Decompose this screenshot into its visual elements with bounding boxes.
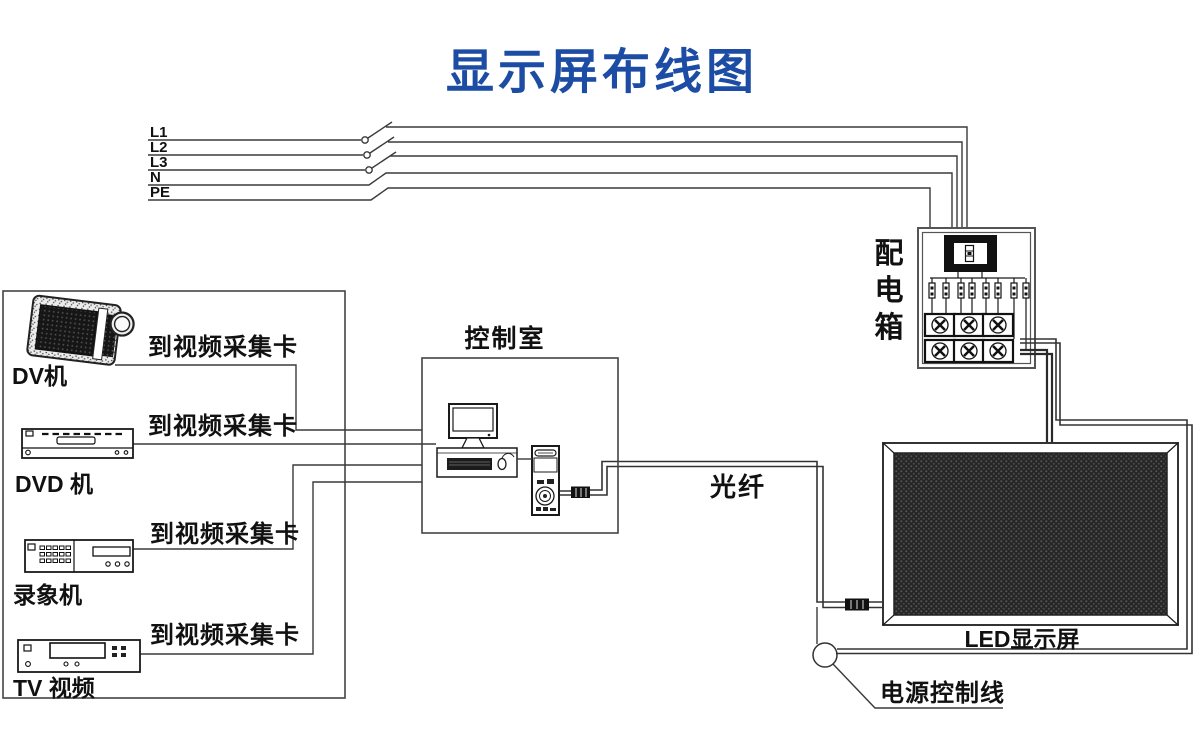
power-line-L1: L1 <box>148 122 967 234</box>
socket-icon <box>954 340 984 362</box>
power-feed-lines: L1 L2 L3 N PE <box>148 122 967 253</box>
socket-icon <box>983 340 1013 362</box>
power-line-L3: L3 <box>148 152 957 234</box>
control-room-label: 控制室 <box>464 324 545 353</box>
monitor-icon <box>449 404 497 448</box>
distribution-box-label-char2: 电 <box>874 274 903 307</box>
fiber-label: 光纤 <box>709 472 766 502</box>
wiring-diagram: 显示屏布线图 L1 L2 L3 N PE <box>0 0 1200 752</box>
power-control-label: 电源控制线 <box>880 679 1005 707</box>
page-title: 显示屏布线图 <box>446 46 758 99</box>
diagram-canvas: 显示屏布线图 L1 L2 L3 N PE <box>0 0 1200 752</box>
distribution-box-label-char1: 配 <box>874 238 903 270</box>
power-line-N: N <box>148 169 952 234</box>
dv-camera-label: DV机 <box>12 363 67 389</box>
control-room: 控制室 <box>422 324 618 533</box>
fiber-connector-icon <box>571 487 590 499</box>
socket-icon <box>983 314 1013 336</box>
dvd-player-label: DVD 机 <box>15 471 93 497</box>
fiber-cable: 光纤 <box>559 462 883 611</box>
control-room-box <box>422 358 618 533</box>
fiber-connector-icon <box>845 599 869 611</box>
power-line-PE: PE <box>148 184 934 253</box>
led-panel <box>894 453 1167 615</box>
keyboard-icon <box>447 458 492 470</box>
annotation-circle <box>813 643 837 667</box>
distribution-box-label-char3: 箱 <box>874 311 903 344</box>
video-recorder-icon <box>25 540 133 572</box>
socket-icon <box>954 314 984 336</box>
socket-icon <box>925 340 955 362</box>
desk-icon <box>437 448 517 477</box>
capture-card-label-4: 到视频采集卡 <box>150 621 300 649</box>
capture-card-label-2: 到视频采集卡 <box>148 412 298 440</box>
pc-tower-icon <box>532 446 559 515</box>
tv-video-icon <box>18 640 140 672</box>
tv-video-label: TV 视频 <box>13 675 95 701</box>
capture-card-label-3: 到视频采集卡 <box>150 520 300 548</box>
led-screen: LED显示屏 <box>883 443 1178 652</box>
capture-card-label-1: 到视频采集卡 <box>148 333 298 361</box>
dv-camera-icon <box>27 295 136 367</box>
distribution-box: 配 电 箱 <box>874 228 1035 368</box>
socket-icon <box>925 314 955 336</box>
main-breaker-icon <box>944 235 997 272</box>
source-devices-box: 到视频采集卡 到视频采集卡 到视频采集卡 到视频采集卡 DV机 DVD 机 <box>3 291 436 701</box>
power-line-PE-label: PE <box>150 184 170 201</box>
video-recorder-label: 录象机 <box>13 582 82 608</box>
led-screen-label: LED显示屏 <box>965 626 1080 652</box>
dvd-player-icon <box>22 429 133 458</box>
